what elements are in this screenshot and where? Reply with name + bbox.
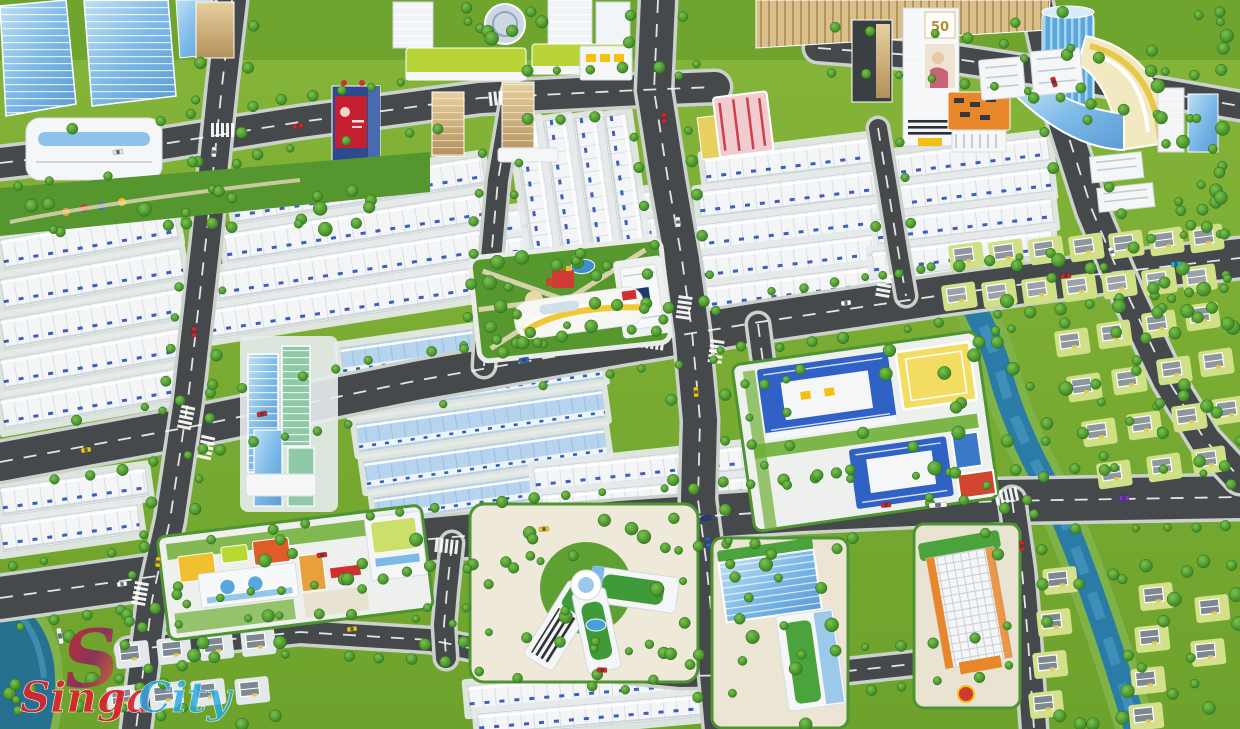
villa [1130,666,1167,695]
tree [184,451,192,459]
tree [458,636,470,648]
tree [276,94,287,105]
tree [364,356,373,365]
tree [1028,92,1039,103]
tree [1155,398,1165,408]
tree [313,202,327,216]
tree [1169,327,1181,339]
tree [718,477,729,488]
tree [897,682,906,691]
tree [395,508,404,517]
tree [649,675,659,685]
tree [589,111,600,122]
villa [1054,327,1091,357]
tree [1056,93,1065,102]
tree [187,157,198,168]
tree [1097,398,1105,406]
tree [617,62,628,73]
tree [861,69,871,79]
tree [759,379,769,389]
tree [525,327,536,338]
tree [378,574,389,585]
tree [1151,79,1165,93]
tree [1006,362,1019,375]
tree [827,68,836,77]
tree [1100,263,1108,271]
tree [637,364,645,372]
tree [211,349,223,361]
tree [1152,307,1164,319]
tree [137,202,151,216]
tree [1220,520,1230,530]
tree [1163,523,1171,531]
orange-apartment-tower [914,524,1022,708]
tree [307,90,318,101]
tree [697,230,708,241]
tree [585,320,598,333]
car [1119,495,1129,500]
tree [992,548,1004,560]
tree [215,444,226,455]
tree [314,609,324,619]
tree [980,528,990,538]
tree [117,464,128,475]
tree [746,630,760,644]
tree [750,538,761,549]
tree [1215,121,1229,135]
tree [845,465,855,475]
tree [269,710,281,722]
tree [205,413,215,423]
tree [1203,701,1216,714]
tree [1162,139,1171,148]
tree [1001,435,1014,448]
tree [591,637,600,646]
tree [1104,182,1114,192]
tree [342,136,351,145]
tree [879,271,887,279]
villa [1194,594,1231,623]
tree [800,284,809,293]
tree [625,647,633,655]
tree [161,376,171,386]
tree [504,283,513,292]
tree [1178,379,1190,391]
tree [1145,65,1157,77]
tree [465,279,476,290]
tree [237,383,247,393]
villa [1128,702,1165,729]
tree [1087,718,1100,729]
tree [991,336,1003,348]
tree [991,326,1000,335]
podium-mall-white [26,118,162,180]
tree [1074,718,1086,729]
tree [1121,684,1135,698]
tree [1192,114,1201,123]
tree [832,543,842,553]
watermark-brand-singa: Singa [20,673,153,722]
tree [181,218,192,229]
tree [475,189,483,197]
tree [692,60,700,68]
tree [1178,390,1189,401]
tree [1220,29,1234,43]
tree [363,201,375,213]
tree [639,201,649,211]
tree [1085,299,1094,308]
tree [1217,42,1229,54]
tree [374,653,384,663]
tree [830,645,841,656]
tree [177,660,188,671]
orange-office-building [948,92,1010,152]
car [705,537,711,547]
tree [276,612,284,620]
car [693,387,698,397]
tree [463,564,472,573]
tree [1192,523,1201,532]
tree [1189,70,1199,80]
tree [478,149,487,158]
tree [275,534,285,544]
tree [782,408,791,417]
tree [216,594,224,602]
tree [1184,288,1194,298]
aerial-city-rendering: 50 [0,0,1240,729]
tree [611,299,623,311]
tree [529,492,540,503]
tree [693,692,704,703]
tree [1190,679,1199,688]
tree [1070,523,1080,533]
tree [906,218,916,228]
tree [1090,379,1100,389]
tree [1020,54,1028,62]
tree [665,648,677,660]
tree [1123,650,1134,661]
tree [691,189,702,200]
tree [812,469,823,480]
tree [1111,327,1122,338]
tree [508,563,519,574]
car [929,502,947,508]
tree [933,677,941,685]
tree [198,444,208,454]
tree [1206,302,1218,314]
tree [563,322,570,329]
tree [175,621,183,629]
tree [163,220,174,231]
tree [1219,229,1230,240]
tree [710,356,718,364]
tree [927,262,936,271]
tree [484,579,494,589]
tree [774,574,783,583]
tree [783,480,792,489]
tree [521,632,531,642]
car [597,667,607,672]
tree [623,37,634,48]
tree [586,65,595,74]
tree [1083,115,1093,125]
tree [768,287,776,295]
tree [1057,6,1069,18]
tree [357,558,368,569]
tree [684,127,692,135]
tree [344,420,352,428]
tree [424,560,436,572]
tree [642,269,653,280]
tree [344,651,355,662]
tree [49,615,59,625]
flower-bed-red [958,686,974,702]
tree [527,533,538,544]
tree [953,260,965,272]
car [675,217,681,227]
tree [533,338,543,348]
tree [725,559,735,569]
tree [1216,17,1225,26]
car [539,526,549,532]
tree [1041,616,1052,627]
tree [960,79,970,89]
tree [744,593,753,602]
tree [799,718,812,729]
tree [1077,427,1089,439]
tree [661,485,669,493]
tree [895,72,902,79]
tree [675,361,683,369]
tree [665,394,677,406]
tree [783,376,790,383]
tree [896,138,905,147]
tree [248,437,258,447]
tree [1024,306,1036,318]
car [881,502,891,507]
tree [553,67,561,75]
tree [846,475,854,483]
tree [482,275,496,289]
tree [1174,197,1183,206]
tree [736,341,746,351]
tree [746,480,755,489]
tree [606,370,615,379]
tree [406,654,417,665]
tree [1040,127,1050,137]
tree [679,617,690,628]
courtyard-pool [586,619,606,631]
tree [660,543,670,553]
tree [1041,437,1050,446]
tree [928,75,936,83]
tree [226,222,237,233]
tree [663,302,674,313]
tree [358,584,367,593]
tree [1214,167,1225,178]
tree [970,633,981,644]
tree [1132,356,1142,366]
tree [1223,274,1232,283]
car [191,327,197,337]
tree [667,474,679,486]
tree [857,427,869,439]
tree [175,282,184,291]
tree [589,297,601,309]
tree [730,572,741,583]
tree [925,493,934,502]
tree [1099,464,1110,475]
tree [506,25,518,37]
tree [346,185,358,197]
tree [206,218,218,230]
tree [1048,162,1059,173]
tree [650,582,664,596]
tree [232,159,241,168]
tree [149,457,159,467]
tree [449,620,457,628]
tree [625,522,638,535]
car [155,557,161,567]
tree [515,159,523,167]
car [1019,541,1025,552]
tree [12,696,20,704]
tree [830,22,840,32]
tree [1110,463,1118,471]
tree [248,20,259,31]
tree [1010,465,1021,476]
tree [526,7,536,17]
tree [675,72,683,80]
tree [561,606,570,615]
tree [247,588,255,596]
villa [234,676,271,705]
villa [1190,638,1227,667]
villa [1032,650,1069,679]
tree [459,344,468,353]
tree [423,603,431,611]
tree [248,101,259,112]
tree [1215,7,1226,18]
tree [402,567,412,577]
tree [497,346,509,358]
tree [830,278,839,287]
tree [236,127,247,138]
tree [268,524,278,534]
tree [492,335,502,345]
tree [895,640,906,651]
tree [1073,579,1084,590]
tree [45,177,54,186]
tree [1054,710,1067,723]
tree [816,582,827,593]
tree [463,312,473,322]
tree [50,475,60,485]
tree [367,83,375,91]
tree [209,652,220,663]
tree [494,300,507,313]
tree [1139,559,1152,572]
tree [908,441,919,452]
tree [602,261,612,271]
tree [522,113,533,124]
tree [679,577,686,584]
tree [1070,464,1080,474]
tree [983,481,991,489]
tree [1208,144,1217,153]
tree [575,248,586,259]
tree [807,336,818,347]
tree [1038,472,1049,483]
tree [1055,303,1067,315]
tree [688,483,699,494]
tree [516,336,529,349]
car [661,113,667,123]
tree [1186,220,1196,230]
tree [984,255,995,266]
tree [789,662,802,675]
tree [693,649,704,660]
tree [766,549,777,560]
tree [1116,711,1129,724]
tree [861,643,868,650]
tree [186,109,196,119]
tree [685,659,695,669]
tree [405,129,414,138]
tree [551,259,563,271]
tree [252,149,263,160]
tree [1221,317,1234,330]
tree [974,672,985,683]
tree [865,26,875,36]
tree [994,310,1002,318]
tree [1008,325,1016,333]
tree [191,96,199,104]
tree [1197,181,1205,189]
tree [630,133,638,141]
tree [1137,663,1147,673]
tree [1052,253,1066,267]
tree [526,551,535,560]
tree [1010,18,1020,28]
tree [556,331,568,343]
tree [599,489,606,496]
tree [1186,653,1195,662]
tree [190,503,201,514]
tree [171,313,179,321]
villa [1198,347,1235,377]
tree [928,638,939,649]
tree [120,640,130,650]
tree [107,549,116,558]
tree [124,616,134,626]
tree [1029,509,1038,518]
tree [1180,231,1187,238]
tree [197,637,209,649]
tree [1140,333,1151,344]
car [1171,261,1181,267]
tree [959,495,969,505]
tree [668,513,679,524]
tree [728,689,736,697]
villa [941,281,978,311]
tree [866,685,877,696]
tree [175,395,185,405]
tree [719,504,731,516]
tree [150,603,161,614]
tree [469,216,479,226]
tree [785,441,795,451]
